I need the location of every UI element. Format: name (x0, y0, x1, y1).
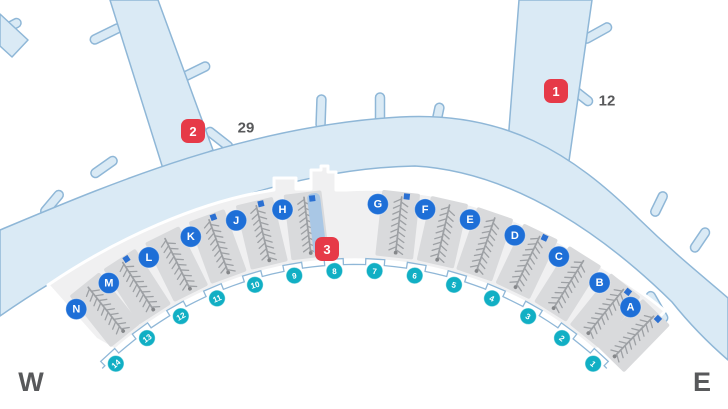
jet-bridge-stub (316, 95, 326, 129)
door-badge-6[interactable]: 6 (405, 266, 424, 285)
gate-badge-G[interactable]: G (367, 194, 388, 215)
gate-badge-J[interactable]: J (226, 210, 247, 231)
jet-bridge-stub (89, 155, 119, 180)
compass-east-label: E (693, 367, 711, 397)
terminal-map: 1234567891011121314 NMLKJHGFEDCBA 112229… (0, 0, 728, 409)
gate-badge-label: L (145, 252, 152, 264)
gate-badge-H[interactable]: H (272, 199, 293, 220)
facility-marker-icon (309, 195, 316, 202)
gate-badge-M[interactable]: M (98, 273, 119, 294)
alert-badge-2[interactable]: 2 (181, 119, 205, 143)
gate-badge-C[interactable]: C (548, 246, 569, 267)
alert-badge-label: 2 (189, 124, 196, 139)
gate-badge-K[interactable]: K (180, 226, 201, 247)
gate-badge-D[interactable]: D (504, 225, 525, 246)
alert-badge-label: 1 (552, 84, 559, 99)
compass: W E (18, 367, 711, 397)
gate-badge-label: J (233, 215, 239, 227)
gate-badge-label: D (511, 230, 519, 242)
gate-badge-label: M (104, 278, 113, 290)
gate-badge-E[interactable]: E (460, 209, 481, 230)
gate-badge-N[interactable]: N (66, 299, 87, 320)
compass-west-label: W (18, 367, 44, 397)
door-badge-7[interactable]: 7 (366, 262, 383, 279)
jet-bridge-stub (689, 226, 712, 253)
gate-badge-B[interactable]: B (589, 272, 610, 293)
alert-note: 29 (238, 120, 255, 137)
alert-badge-label: 3 (323, 242, 330, 257)
gate-badge-L[interactable]: L (138, 247, 159, 268)
gate-badge-label: F (422, 204, 429, 216)
door-badge-9[interactable]: 9 (285, 266, 304, 285)
gate-badge-label: E (466, 214, 473, 226)
alert-badge-3[interactable]: 3 (315, 237, 339, 261)
door-badge-10[interactable]: 10 (245, 275, 265, 295)
facility-marker-icon (403, 193, 410, 200)
gate-badge-label: G (374, 199, 383, 211)
alert-badge-1[interactable]: 1 (544, 79, 568, 103)
gate-badge-label: H (279, 204, 287, 216)
gate-badge-label: K (187, 231, 195, 243)
door-badge-5[interactable]: 5 (444, 275, 464, 295)
gate-badge-label: B (596, 277, 604, 289)
gate-badge-label: C (555, 251, 563, 263)
alert-note: 12 (599, 93, 616, 110)
concourse-pier-left (110, 0, 213, 172)
door-badge-8[interactable]: 8 (326, 262, 343, 279)
gate-badge-F[interactable]: F (415, 199, 436, 220)
gate-badge-label: A (627, 302, 635, 314)
jet-bridge-stub (649, 190, 668, 217)
gate-badge-label: N (72, 304, 80, 316)
gate-badge-A[interactable]: A (620, 297, 641, 318)
